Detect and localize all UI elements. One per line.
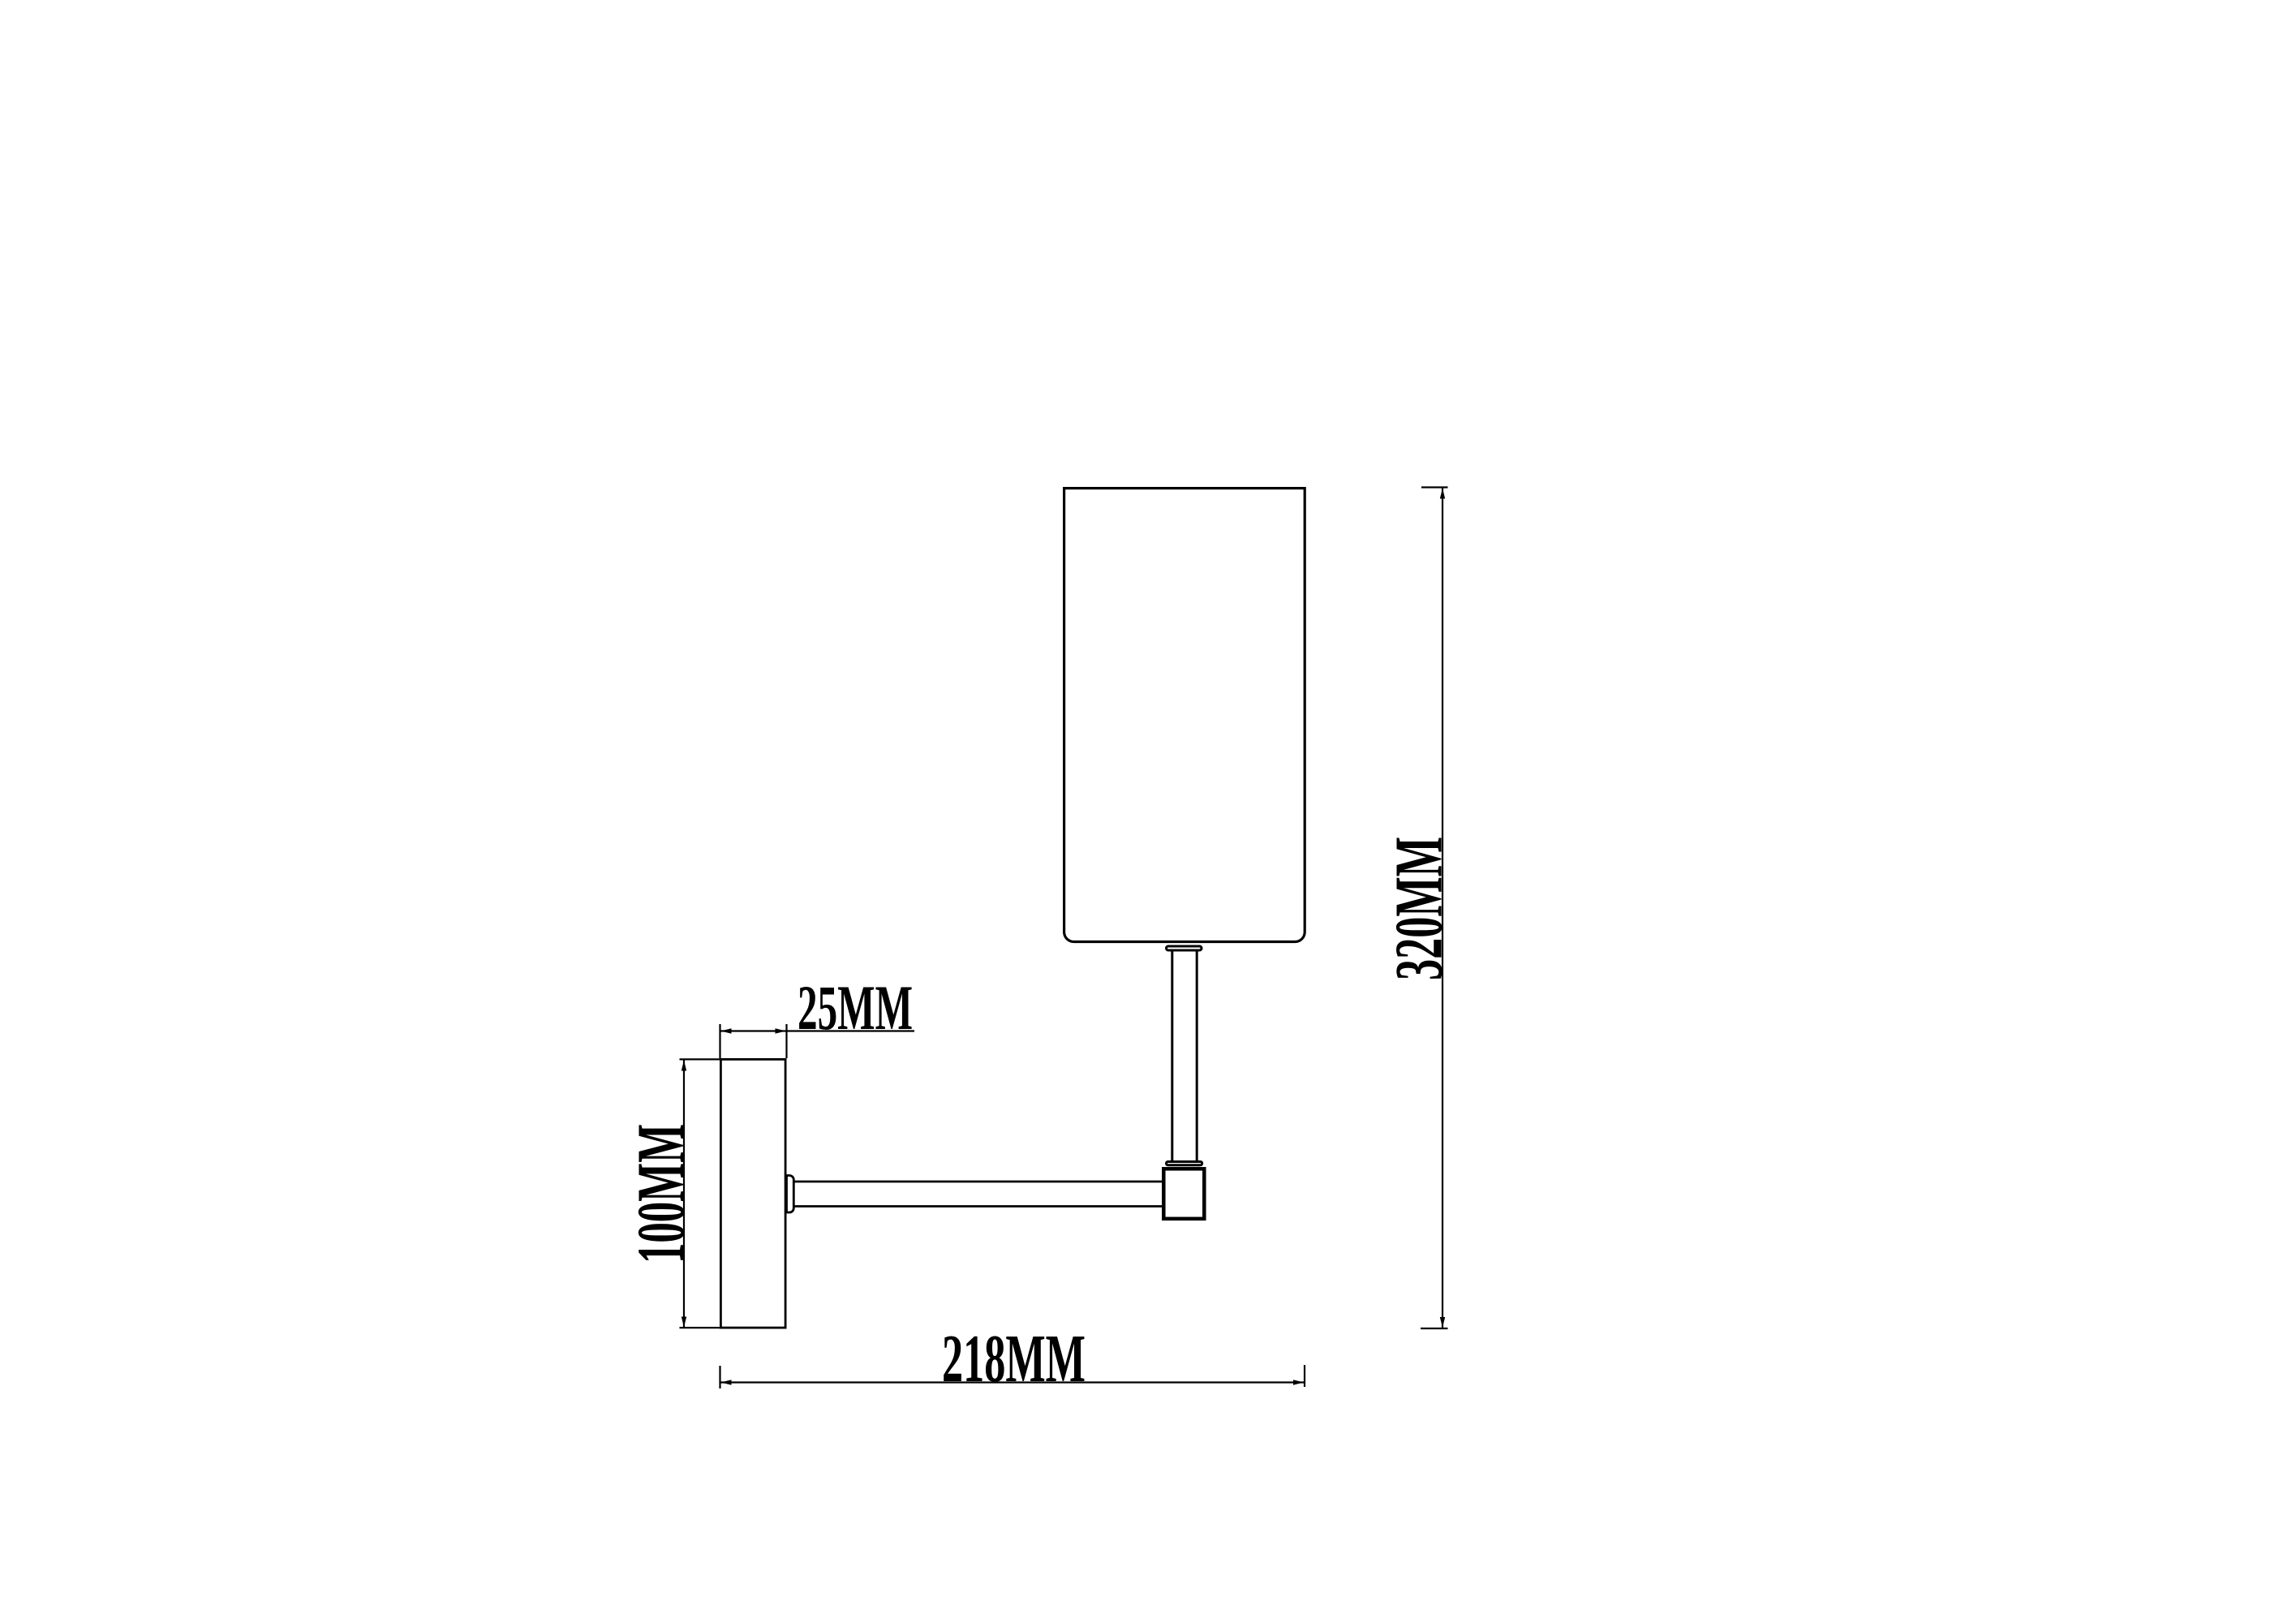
svg-text:25MM: 25MM bbox=[798, 972, 913, 1043]
svg-text:320MM: 320MM bbox=[1382, 837, 1457, 980]
svg-text:100MM: 100MM bbox=[624, 1124, 699, 1264]
svg-text:218MM: 218MM bbox=[942, 1321, 1086, 1397]
